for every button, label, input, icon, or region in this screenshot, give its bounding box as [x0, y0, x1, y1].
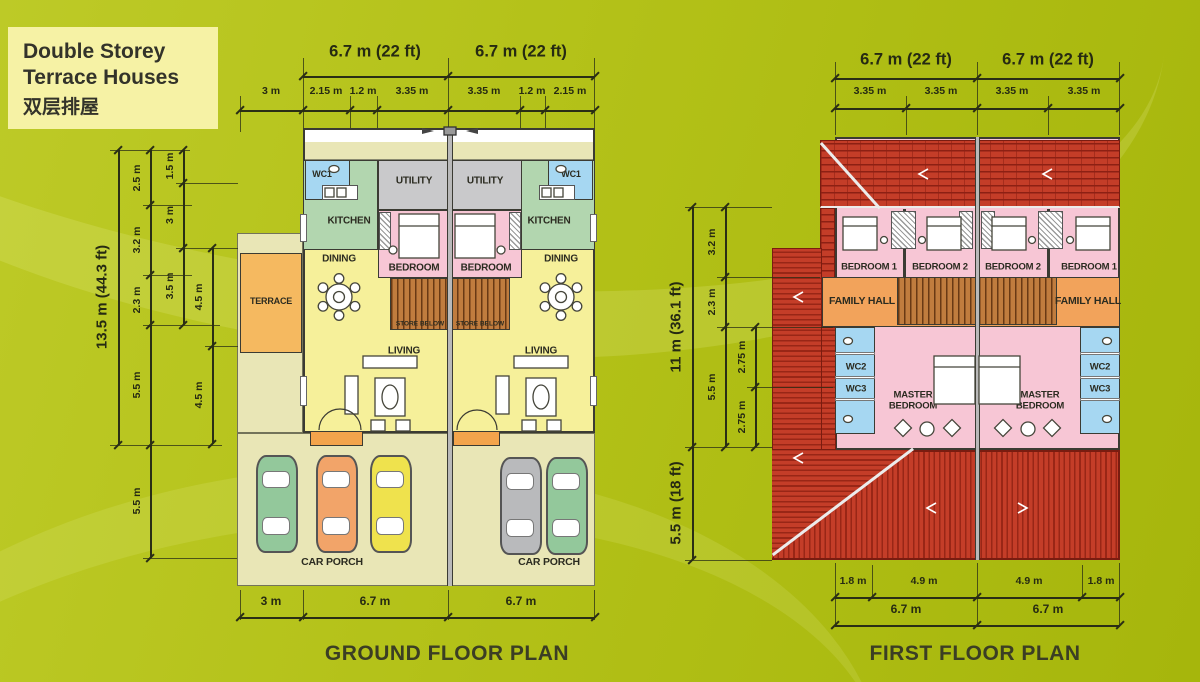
party-wall-marker: [422, 127, 478, 135]
furniture-overlay: [0, 0, 1200, 682]
dining-table: [318, 274, 582, 321]
master-bed: [895, 356, 1061, 436]
floor-plan-sheet: Double Storey Terrace Houses 双层排屋: [0, 0, 1200, 682]
sofa-set: [345, 356, 568, 431]
bed: [389, 214, 1110, 258]
stove: [325, 188, 563, 197]
